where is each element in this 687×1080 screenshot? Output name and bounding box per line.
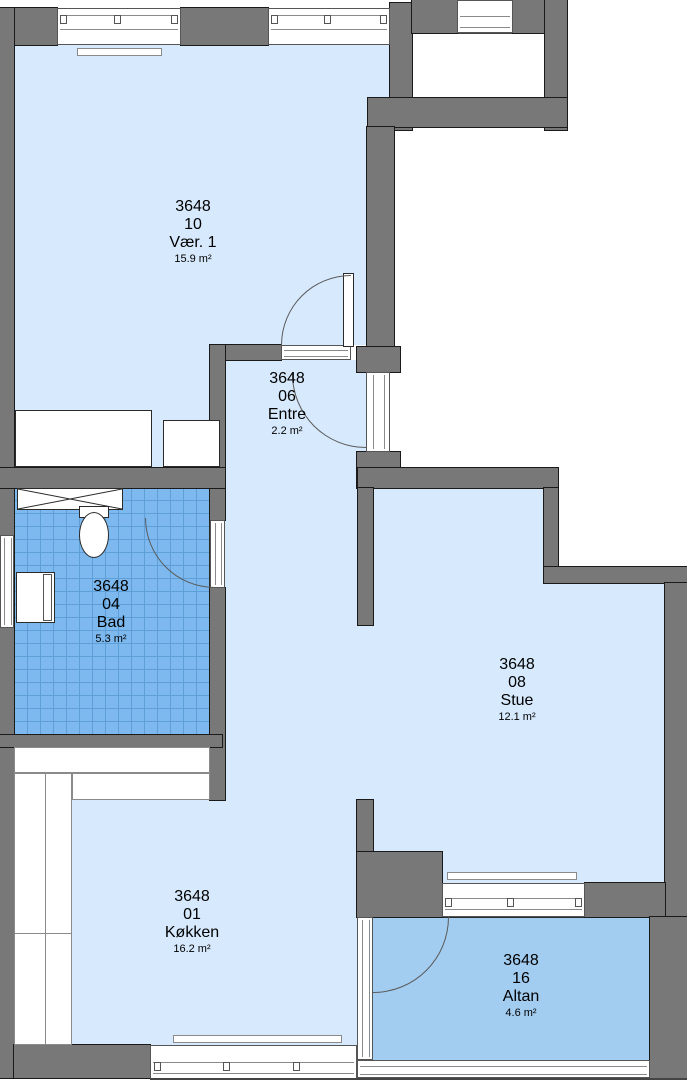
room-number: 06 [217, 388, 357, 406]
room-name: Køkken [122, 924, 262, 942]
window-kokken-bottom [150, 1045, 357, 1080]
toilet-bowl [79, 512, 109, 558]
room-fill-passage [225, 625, 373, 800]
room-number: 08 [447, 674, 587, 692]
room-area: 15.9 m² [123, 252, 263, 266]
room-number: 16 [451, 970, 591, 988]
room-area: 16.2 m² [122, 942, 262, 956]
room-number: 04 [41, 596, 181, 614]
room-label-bad: 3648 04 Bad 5.3 m² [41, 578, 181, 646]
room-name: Stue [447, 692, 587, 710]
room-unit: 3648 [451, 952, 591, 970]
window-vaer1-right [268, 8, 390, 45]
shaft-niche [412, 33, 545, 98]
window-kokken-altan [357, 917, 373, 1060]
entry-door-frame [366, 372, 390, 452]
room-label-entre: 3648 06 Entre 2.2 m² [217, 370, 357, 438]
room-unit: 3648 [447, 656, 587, 674]
wall-bad-bottom [0, 735, 222, 747]
door-opening-vaer1 [281, 345, 351, 360]
room-number: 10 [123, 216, 263, 234]
wall-stue-altan-right [585, 883, 665, 917]
wall-shaft-top-left [412, 0, 457, 33]
wall-altan-right [650, 917, 687, 1080]
radiator-kokken [173, 1035, 342, 1043]
wall-entry-door-top-stub [357, 347, 400, 372]
kitchen-counter-top [14, 747, 210, 773]
room-name: Bad [41, 614, 181, 632]
room-label-kokken: 3648 01 Køkken 16.2 m² [122, 888, 262, 956]
room-area: 12.1 m² [447, 710, 587, 724]
room-label-stue: 3648 08 Stue 12.1 m² [447, 656, 587, 724]
room-name: Entre [217, 406, 357, 424]
wall-bad-top [0, 468, 225, 488]
closet-vaer1-right [163, 420, 220, 467]
altan-railing [357, 1060, 650, 1078]
room-number: 01 [122, 906, 262, 924]
room-unit: 3648 [123, 198, 263, 216]
wall-right-outer [665, 583, 687, 917]
window-stue-altan [442, 883, 585, 917]
wall-bad-right-lower [210, 588, 225, 800]
room-fill-stue-upper [373, 488, 544, 583]
wall-kokken-stue [357, 800, 373, 852]
wall-bottom-left-block [14, 1045, 150, 1078]
wall-entre-right-upper [367, 127, 394, 347]
room-label-vaer1: 3648 10 Vær. 1 15.9 m² [123, 198, 263, 266]
closet-vaer1-left [15, 410, 152, 467]
wall-stue-top [358, 468, 558, 488]
room-area: 5.3 m² [41, 632, 181, 646]
kitchen-counter-left [14, 773, 72, 1045]
window-vaer1-left [57, 8, 181, 45]
wall-shaft-bottom [368, 98, 567, 127]
room-area: 4.6 m² [451, 1006, 591, 1020]
room-fill-stue-lower [373, 583, 665, 883]
room-name: Vær. 1 [123, 234, 263, 252]
floor-plan: 3648 10 Vær. 1 15.9 m² 3648 06 Entre 2.2… [0, 0, 687, 1080]
kitchen-counter-top2 [72, 773, 210, 800]
wall-stue-step [544, 567, 687, 583]
window-shaft [457, 0, 513, 33]
radiator-stue [447, 872, 577, 880]
wall-stue-altan-left [357, 852, 442, 917]
wall-corridor-stue [358, 488, 373, 625]
room-unit: 3648 [217, 370, 357, 388]
wall-top-mid-block [181, 8, 268, 45]
radiator-vaer1 [77, 48, 162, 56]
room-label-altan: 3648 16 Altan 4.6 m² [451, 952, 591, 1020]
room-unit: 3648 [122, 888, 262, 906]
room-name: Altan [451, 988, 591, 1006]
room-unit: 3648 [41, 578, 181, 596]
room-fill-entre-corridor [225, 470, 358, 625]
room-fill-vaer1-top [14, 45, 390, 127]
room-area: 2.2 m² [217, 424, 357, 438]
window-bad [0, 535, 14, 628]
